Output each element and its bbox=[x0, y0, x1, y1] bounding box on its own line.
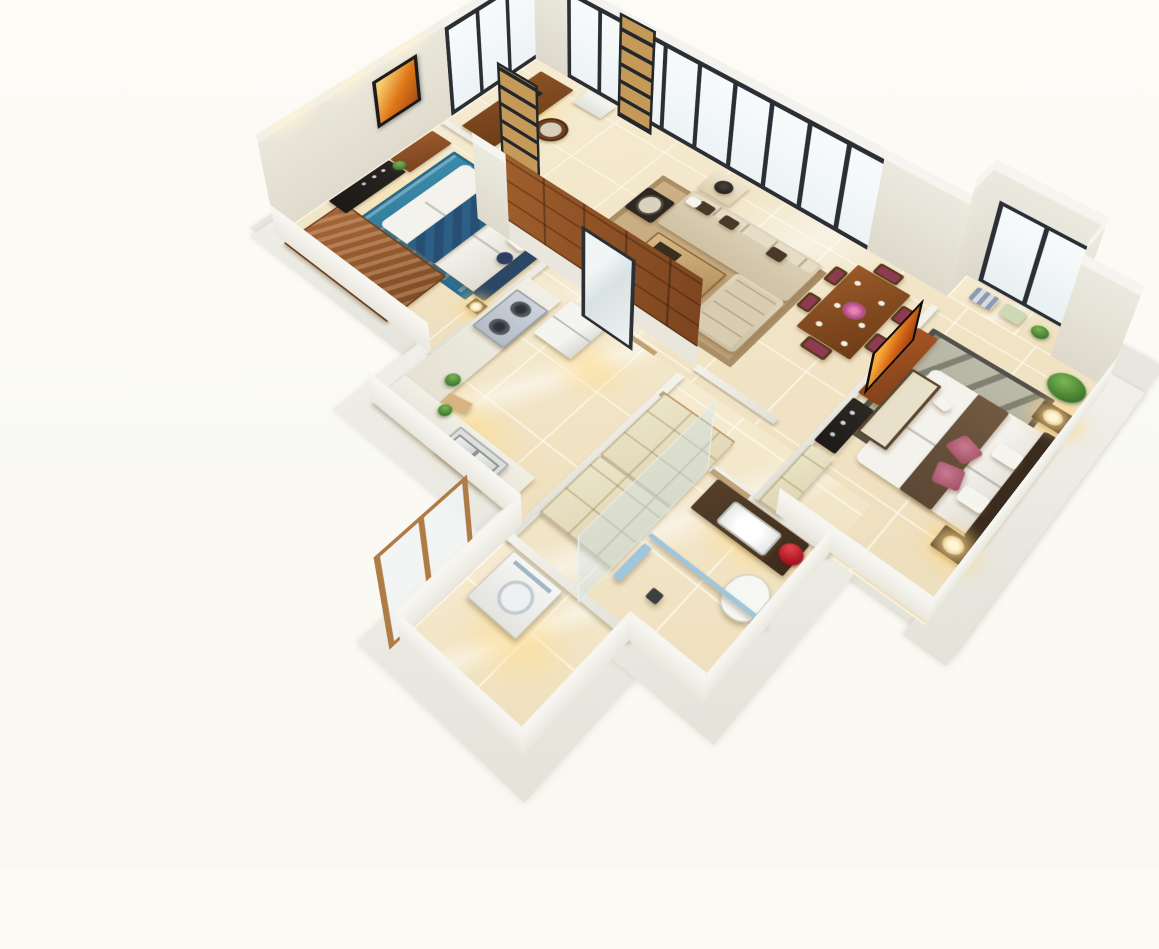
floral-pillow bbox=[944, 434, 983, 465]
bookshelf-tower bbox=[617, 12, 656, 135]
bed-pillow bbox=[955, 484, 991, 514]
wall-painting bbox=[372, 53, 421, 128]
apartment-plan bbox=[70, 58, 1105, 949]
floor-plan-render bbox=[0, 0, 1159, 869]
isometric-scene bbox=[0, 0, 1159, 869]
bed-pillow bbox=[989, 441, 1024, 470]
floral-pillow bbox=[930, 460, 965, 492]
